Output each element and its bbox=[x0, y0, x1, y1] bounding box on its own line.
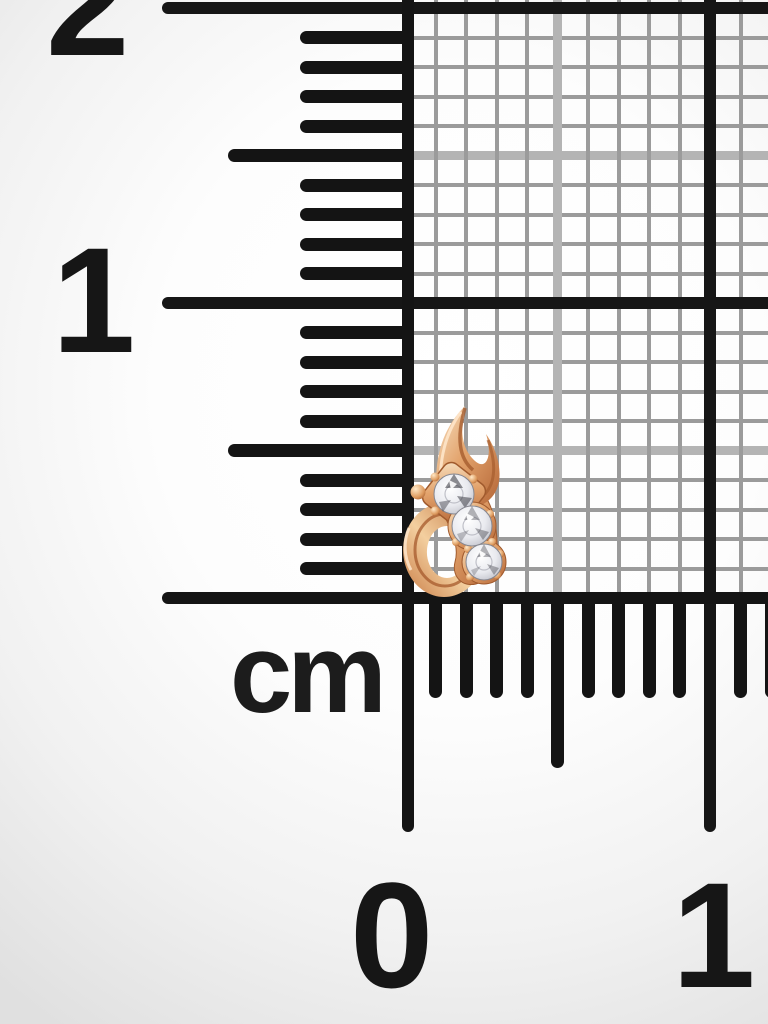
ruler-mm-tick bbox=[300, 61, 414, 74]
ruler-cm-line bbox=[704, 0, 716, 832]
ruler-mm-tick bbox=[300, 385, 414, 398]
gold-bead bbox=[411, 485, 426, 500]
ruler-mm-tick bbox=[300, 356, 414, 369]
ruler-mm-tick bbox=[734, 592, 747, 698]
ruler-mm-tick bbox=[300, 90, 414, 103]
ruler-mm-tick bbox=[582, 592, 595, 698]
ruler-half-tick bbox=[228, 444, 414, 457]
ruler-mm-tick bbox=[765, 592, 768, 698]
horizontal-ruler-label-0: 0 bbox=[350, 860, 433, 1010]
earring-photo bbox=[393, 400, 518, 605]
earring-stone-3 bbox=[466, 544, 502, 580]
ruler-mm-tick bbox=[300, 326, 414, 339]
ruler-mm-tick bbox=[429, 592, 442, 698]
ruler-half-tick bbox=[228, 149, 414, 162]
vertical-ruler-label-1: 1 bbox=[52, 225, 135, 375]
photo-stage: 2 1 cm 0 1 bbox=[0, 0, 768, 1024]
ruler-mm-tick bbox=[300, 267, 414, 280]
ruler-mm-tick bbox=[300, 238, 414, 251]
ruler-mm-tick bbox=[300, 179, 414, 192]
ruler-mm-tick bbox=[300, 31, 414, 44]
ruler-mm-tick bbox=[460, 592, 473, 698]
vertical-ruler-label-2: 2 bbox=[46, 0, 129, 78]
ruler-mm-tick bbox=[490, 592, 503, 698]
earring-stone-2 bbox=[452, 506, 492, 546]
ruler-cm-line bbox=[162, 2, 768, 14]
ruler-unit-label: cm bbox=[230, 618, 382, 730]
ruler-mm-tick bbox=[300, 120, 414, 133]
ruler-mm-tick bbox=[300, 208, 414, 221]
ruler-mm-tick bbox=[673, 592, 686, 698]
ruler-mm-tick bbox=[521, 592, 534, 698]
ruler-cm-line bbox=[162, 297, 768, 309]
ruler-mm-tick bbox=[643, 592, 656, 698]
ruler-mm-tick bbox=[612, 592, 625, 698]
ruler-half-tick bbox=[551, 592, 564, 768]
horizontal-ruler-label-1: 1 bbox=[672, 860, 755, 1010]
